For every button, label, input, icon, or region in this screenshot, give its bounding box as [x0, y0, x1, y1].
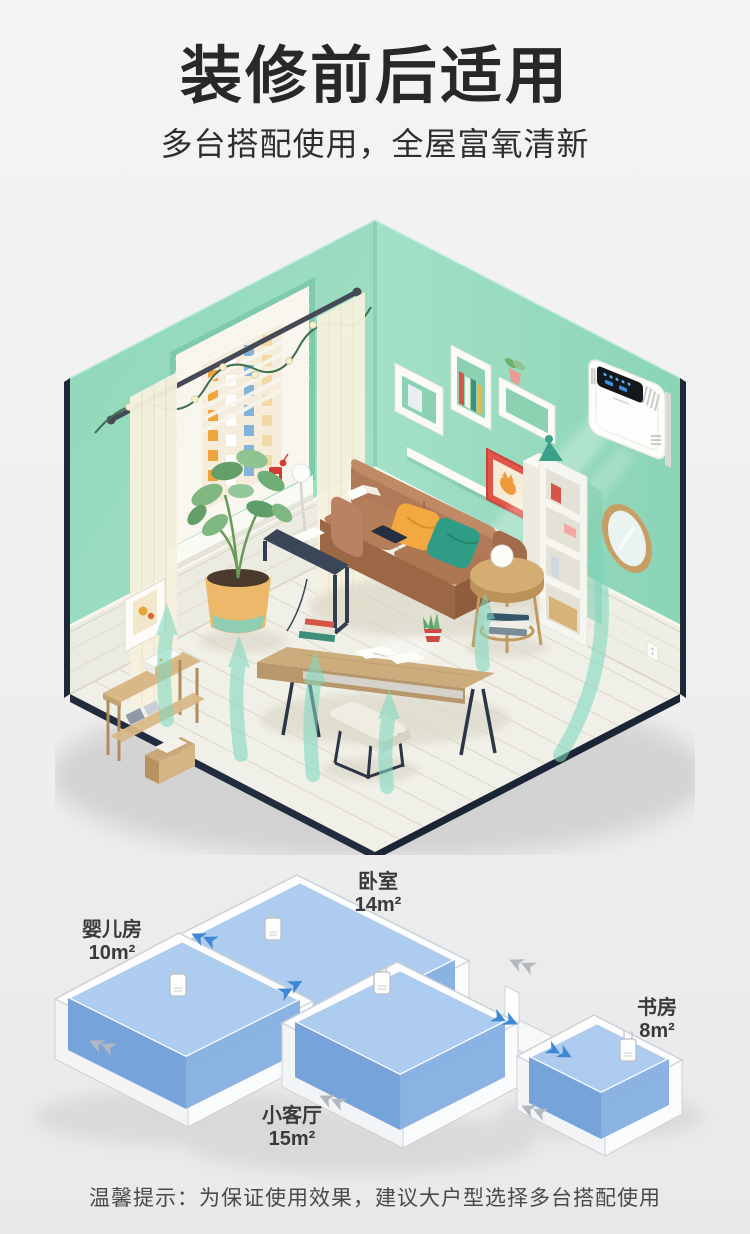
purifier-side-depth — [665, 391, 671, 468]
room-illustration-svg — [55, 195, 695, 855]
room-label-baby-room: 婴儿房 10m² — [56, 919, 168, 965]
tip-text: 温馨提示：为保证使用效果，建议大户型选择多台搭配使用 — [0, 1182, 750, 1212]
page-subtitle: 多台搭配使用，全屋富氧清新 — [0, 126, 750, 162]
room-label-living-room: 小客厅 15m² — [236, 1105, 348, 1151]
room-name: 小客厅 — [236, 1105, 348, 1128]
room-name: 书房 — [606, 997, 708, 1020]
room-name: 婴儿房 — [56, 919, 168, 942]
room-area: 15m² — [236, 1128, 348, 1151]
room-area: 8m² — [606, 1020, 708, 1043]
product-detail-page: 装修前后适用 多台搭配使用，全屋富氧清新 — [0, 0, 750, 1234]
floor-plan-section: 婴儿房 10m² 卧室 14m² 书房 8m² 小客厅 15m² — [0, 855, 750, 1185]
room-label-bedroom: 卧室 14m² — [322, 871, 434, 917]
living-room-illustration — [55, 195, 695, 855]
room-area: 10m² — [56, 942, 168, 965]
page-title: 装修前后适用 — [0, 44, 750, 110]
sphere-lamp — [491, 545, 513, 567]
room-name: 卧室 — [322, 871, 434, 894]
room-area: 14m² — [322, 894, 434, 917]
header: 装修前后适用 多台搭配使用，全屋富氧清新 — [0, 44, 750, 162]
room-label-study: 书房 8m² — [606, 997, 708, 1043]
